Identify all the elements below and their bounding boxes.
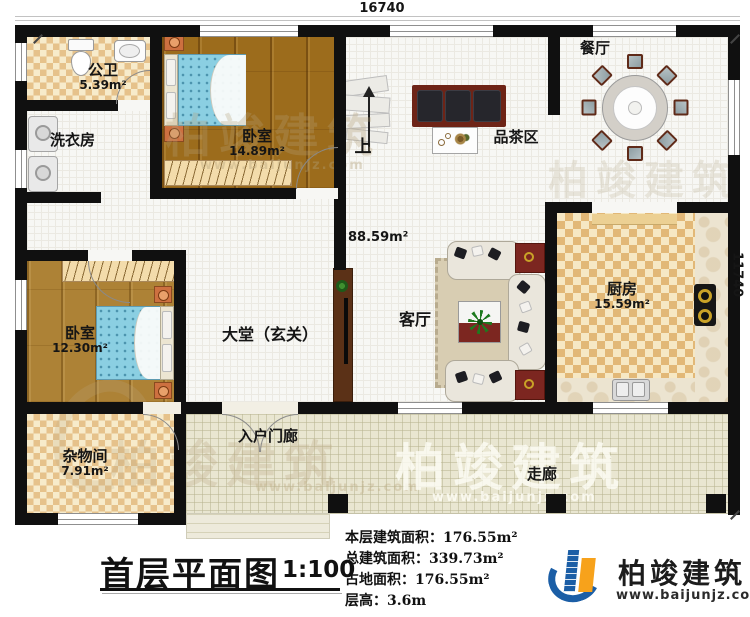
window — [728, 80, 740, 155]
dimension-right: 11740 — [729, 252, 744, 297]
wall — [174, 250, 186, 513]
window — [398, 402, 462, 414]
wall — [15, 192, 101, 203]
room-label-hall: 大堂（玄关） — [203, 326, 337, 344]
window — [58, 513, 138, 525]
porch-step — [186, 513, 330, 539]
stair-step-icon — [343, 94, 390, 113]
top-exterior-band — [15, 16, 740, 24]
tea-sofa-seat-icon — [473, 90, 501, 122]
brand-name: 柏竣建筑 — [618, 552, 746, 592]
stairs-up-label: 上 — [351, 138, 375, 157]
wall — [548, 25, 560, 115]
stats-line: 本层建筑面积：176.55m² — [345, 527, 518, 547]
window — [593, 402, 668, 414]
room-label-tea: 品茶区 — [480, 129, 552, 146]
stats-line: 总建筑面积：339.73m² — [345, 548, 504, 568]
sink-bowl-icon — [632, 382, 645, 397]
plant-icon — [336, 280, 348, 292]
chair-icon — [627, 146, 643, 161]
room-label-dining: 餐厅 — [563, 40, 627, 57]
chair-icon — [582, 100, 597, 116]
doorway — [88, 250, 132, 261]
room-label-bathroom: 公卫 5.39m² — [63, 62, 143, 92]
side-table-emblem-icon — [524, 252, 534, 262]
tea-cup-icon — [445, 133, 451, 139]
burner-icon — [698, 309, 712, 323]
dining-table-center-icon — [628, 101, 642, 115]
doorway — [296, 188, 338, 199]
window — [15, 280, 27, 330]
pillow-icon — [162, 311, 172, 339]
room-label-laundry: 洗衣房 — [35, 132, 110, 149]
brand-url: www.baijunjz.com — [616, 588, 750, 603]
side-table-emblem-icon — [524, 379, 534, 389]
room-label-corridor: 走廊 — [514, 466, 570, 483]
window — [200, 25, 298, 37]
brand-logo-icon — [546, 546, 612, 610]
tea-set-icon — [454, 132, 470, 146]
entry-doorway — [222, 402, 298, 414]
plant-center-icon — [477, 319, 483, 325]
window — [15, 150, 27, 188]
stats-line: 占地面积：176.55m² — [345, 569, 490, 589]
dimension-top: 16740 — [350, 2, 414, 17]
room-label-kitchen: 厨房 15.59m² — [581, 281, 663, 311]
washbasin-bowl-icon — [119, 44, 140, 58]
wardrobe-icon — [164, 160, 292, 186]
blanket-icon — [134, 307, 161, 379]
chair-icon — [674, 100, 689, 116]
tea-sofa-seat-icon — [417, 90, 443, 122]
room-label-porch: 入户门廊 — [218, 428, 318, 445]
nightstand-icon — [164, 124, 184, 142]
pillow-icon — [166, 59, 176, 86]
pillow-icon — [166, 92, 176, 119]
stair-step-icon — [344, 113, 391, 129]
doorway — [143, 402, 181, 414]
floor-plan-sheet: 柏竣建筑 www.baijunjz.com 柏竣建筑 柏竣建筑 www.baij… — [0, 0, 750, 617]
doorway — [592, 202, 677, 213]
tea-sofa-seat-icon — [445, 90, 471, 122]
toilet-icon — [68, 39, 94, 51]
blanket-icon — [210, 55, 246, 125]
sink-bowl-icon — [616, 382, 629, 397]
tv-icon — [344, 298, 348, 364]
room-label-storage: 杂物间 7.91m² — [42, 448, 128, 478]
room-label-bedroom1: 卧室 14.89m² — [212, 128, 302, 158]
window — [593, 25, 676, 37]
kitchen-counter-top — [592, 214, 677, 225]
room-label-bedroom2: 卧室 12.30m² — [40, 325, 120, 355]
pillar — [706, 494, 726, 513]
washer-door-icon — [35, 165, 51, 181]
hall-area-label: 88.59m² — [348, 231, 404, 246]
wall — [15, 100, 118, 111]
title-underline — [100, 588, 340, 591]
burner-icon — [698, 289, 712, 303]
wall — [545, 202, 557, 414]
tea-cup-icon — [438, 139, 445, 146]
title-underline-thin — [102, 593, 342, 594]
wall — [150, 25, 162, 199]
nightstand-icon — [154, 382, 172, 399]
pillow-icon — [162, 344, 172, 372]
up-arrow-head-icon — [363, 86, 375, 97]
pillar — [546, 494, 566, 513]
window — [15, 43, 27, 81]
chair-icon — [627, 54, 643, 69]
room-label-living: 客厅 — [383, 311, 447, 329]
window — [390, 25, 493, 37]
nightstand-icon — [154, 286, 172, 303]
stats-line: 层高：3.6m — [345, 590, 426, 610]
pillar — [328, 494, 348, 513]
